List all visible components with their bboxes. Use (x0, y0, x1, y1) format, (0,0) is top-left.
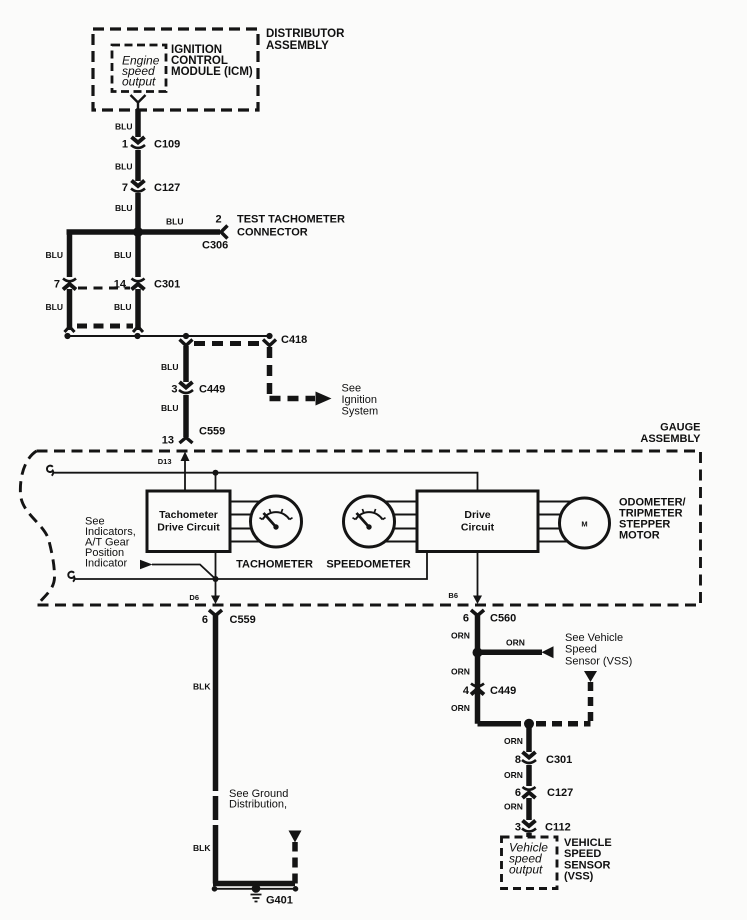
svg-text:C112: C112 (545, 822, 571, 834)
svg-text:MODULE (ICM): MODULE (ICM) (171, 66, 253, 78)
svg-text:Distribution,: Distribution, (229, 799, 287, 811)
svg-text:BLU: BLU (46, 302, 63, 312)
svg-text:SPEEDOMETER: SPEEDOMETER (326, 559, 410, 571)
svg-text:C127: C127 (154, 182, 180, 194)
svg-text:(VSS): (VSS) (564, 871, 594, 883)
svg-text:D6: D6 (189, 593, 199, 602)
svg-text:Drive Circuit: Drive Circuit (157, 522, 220, 534)
svg-text:8: 8 (515, 754, 521, 766)
svg-text:See: See (342, 383, 362, 395)
svg-text:ORN: ORN (451, 631, 470, 641)
svg-text:6: 6 (202, 614, 208, 626)
svg-text:BLK: BLK (193, 843, 211, 853)
svg-text:See Vehicle: See Vehicle (565, 632, 623, 644)
svg-text:BLU: BLU (161, 362, 178, 372)
svg-text:Tachometer: Tachometer (159, 509, 218, 521)
svg-text:C301: C301 (154, 279, 180, 291)
svg-text:Drive: Drive (464, 509, 490, 521)
svg-text:2: 2 (215, 214, 221, 226)
svg-text:BLU: BLU (115, 203, 132, 213)
svg-text:C449: C449 (199, 384, 225, 396)
svg-text:7: 7 (122, 182, 128, 194)
svg-text:CONNECTOR: CONNECTOR (237, 227, 308, 239)
svg-text:Speed: Speed (565, 644, 597, 656)
svg-text:13: 13 (162, 435, 174, 447)
svg-text:Indicator: Indicator (85, 558, 128, 570)
svg-text:ASSEMBLY: ASSEMBLY (640, 433, 701, 445)
svg-text:C449: C449 (490, 685, 516, 697)
svg-text:GAUGE: GAUGE (660, 422, 700, 434)
svg-text:BLU: BLU (115, 162, 132, 172)
svg-text:TEST TACHOMETER: TEST TACHOMETER (237, 214, 345, 226)
svg-text:4: 4 (463, 685, 470, 697)
svg-text:14: 14 (114, 279, 127, 291)
svg-text:3: 3 (171, 384, 177, 396)
svg-text:output: output (509, 863, 543, 877)
svg-text:Sensor (VSS): Sensor (VSS) (565, 656, 632, 668)
svg-text:BLU: BLU (115, 122, 132, 132)
svg-text:6: 6 (515, 787, 521, 799)
svg-text:C109: C109 (154, 139, 180, 151)
svg-text:1: 1 (122, 139, 128, 151)
svg-text:BLK: BLK (193, 682, 211, 692)
svg-text:SPEED: SPEED (564, 848, 601, 860)
svg-text:D13: D13 (158, 457, 172, 466)
svg-text:BLU: BLU (114, 302, 131, 312)
svg-text:DISTRIBUTOR: DISTRIBUTOR (266, 28, 345, 40)
svg-text:BLU: BLU (114, 250, 131, 260)
svg-text:output: output (122, 75, 156, 89)
svg-text:ORN: ORN (451, 667, 470, 677)
svg-text:ORN: ORN (504, 802, 523, 812)
svg-text:C306: C306 (202, 240, 228, 252)
svg-text:B6: B6 (448, 591, 458, 600)
svg-text:3: 3 (515, 822, 521, 834)
svg-text:C418: C418 (281, 334, 307, 346)
svg-text:6: 6 (463, 613, 469, 625)
svg-text:C559: C559 (230, 614, 256, 626)
svg-text:C559: C559 (199, 426, 225, 438)
svg-text:BLU: BLU (46, 250, 63, 260)
svg-text:Ignition: Ignition (342, 394, 377, 406)
svg-text:System: System (342, 406, 379, 418)
svg-text:MOTOR: MOTOR (619, 530, 660, 542)
svg-text:ORN: ORN (504, 770, 523, 780)
svg-text:BLU: BLU (166, 217, 183, 227)
svg-text:C301: C301 (546, 754, 572, 766)
svg-text:C560: C560 (490, 613, 516, 625)
svg-text:G401: G401 (266, 895, 293, 907)
svg-text:7: 7 (54, 279, 60, 291)
svg-text:ORN: ORN (506, 638, 525, 648)
svg-text:ORN: ORN (504, 736, 523, 746)
svg-text:ORN: ORN (451, 703, 470, 713)
svg-text:M: M (581, 520, 587, 529)
svg-text:TACHOMETER: TACHOMETER (236, 559, 313, 571)
svg-text:ASSEMBLY: ASSEMBLY (266, 40, 329, 52)
svg-text:Circuit: Circuit (461, 522, 495, 534)
svg-text:BLU: BLU (161, 403, 178, 413)
svg-text:C127: C127 (547, 787, 573, 799)
